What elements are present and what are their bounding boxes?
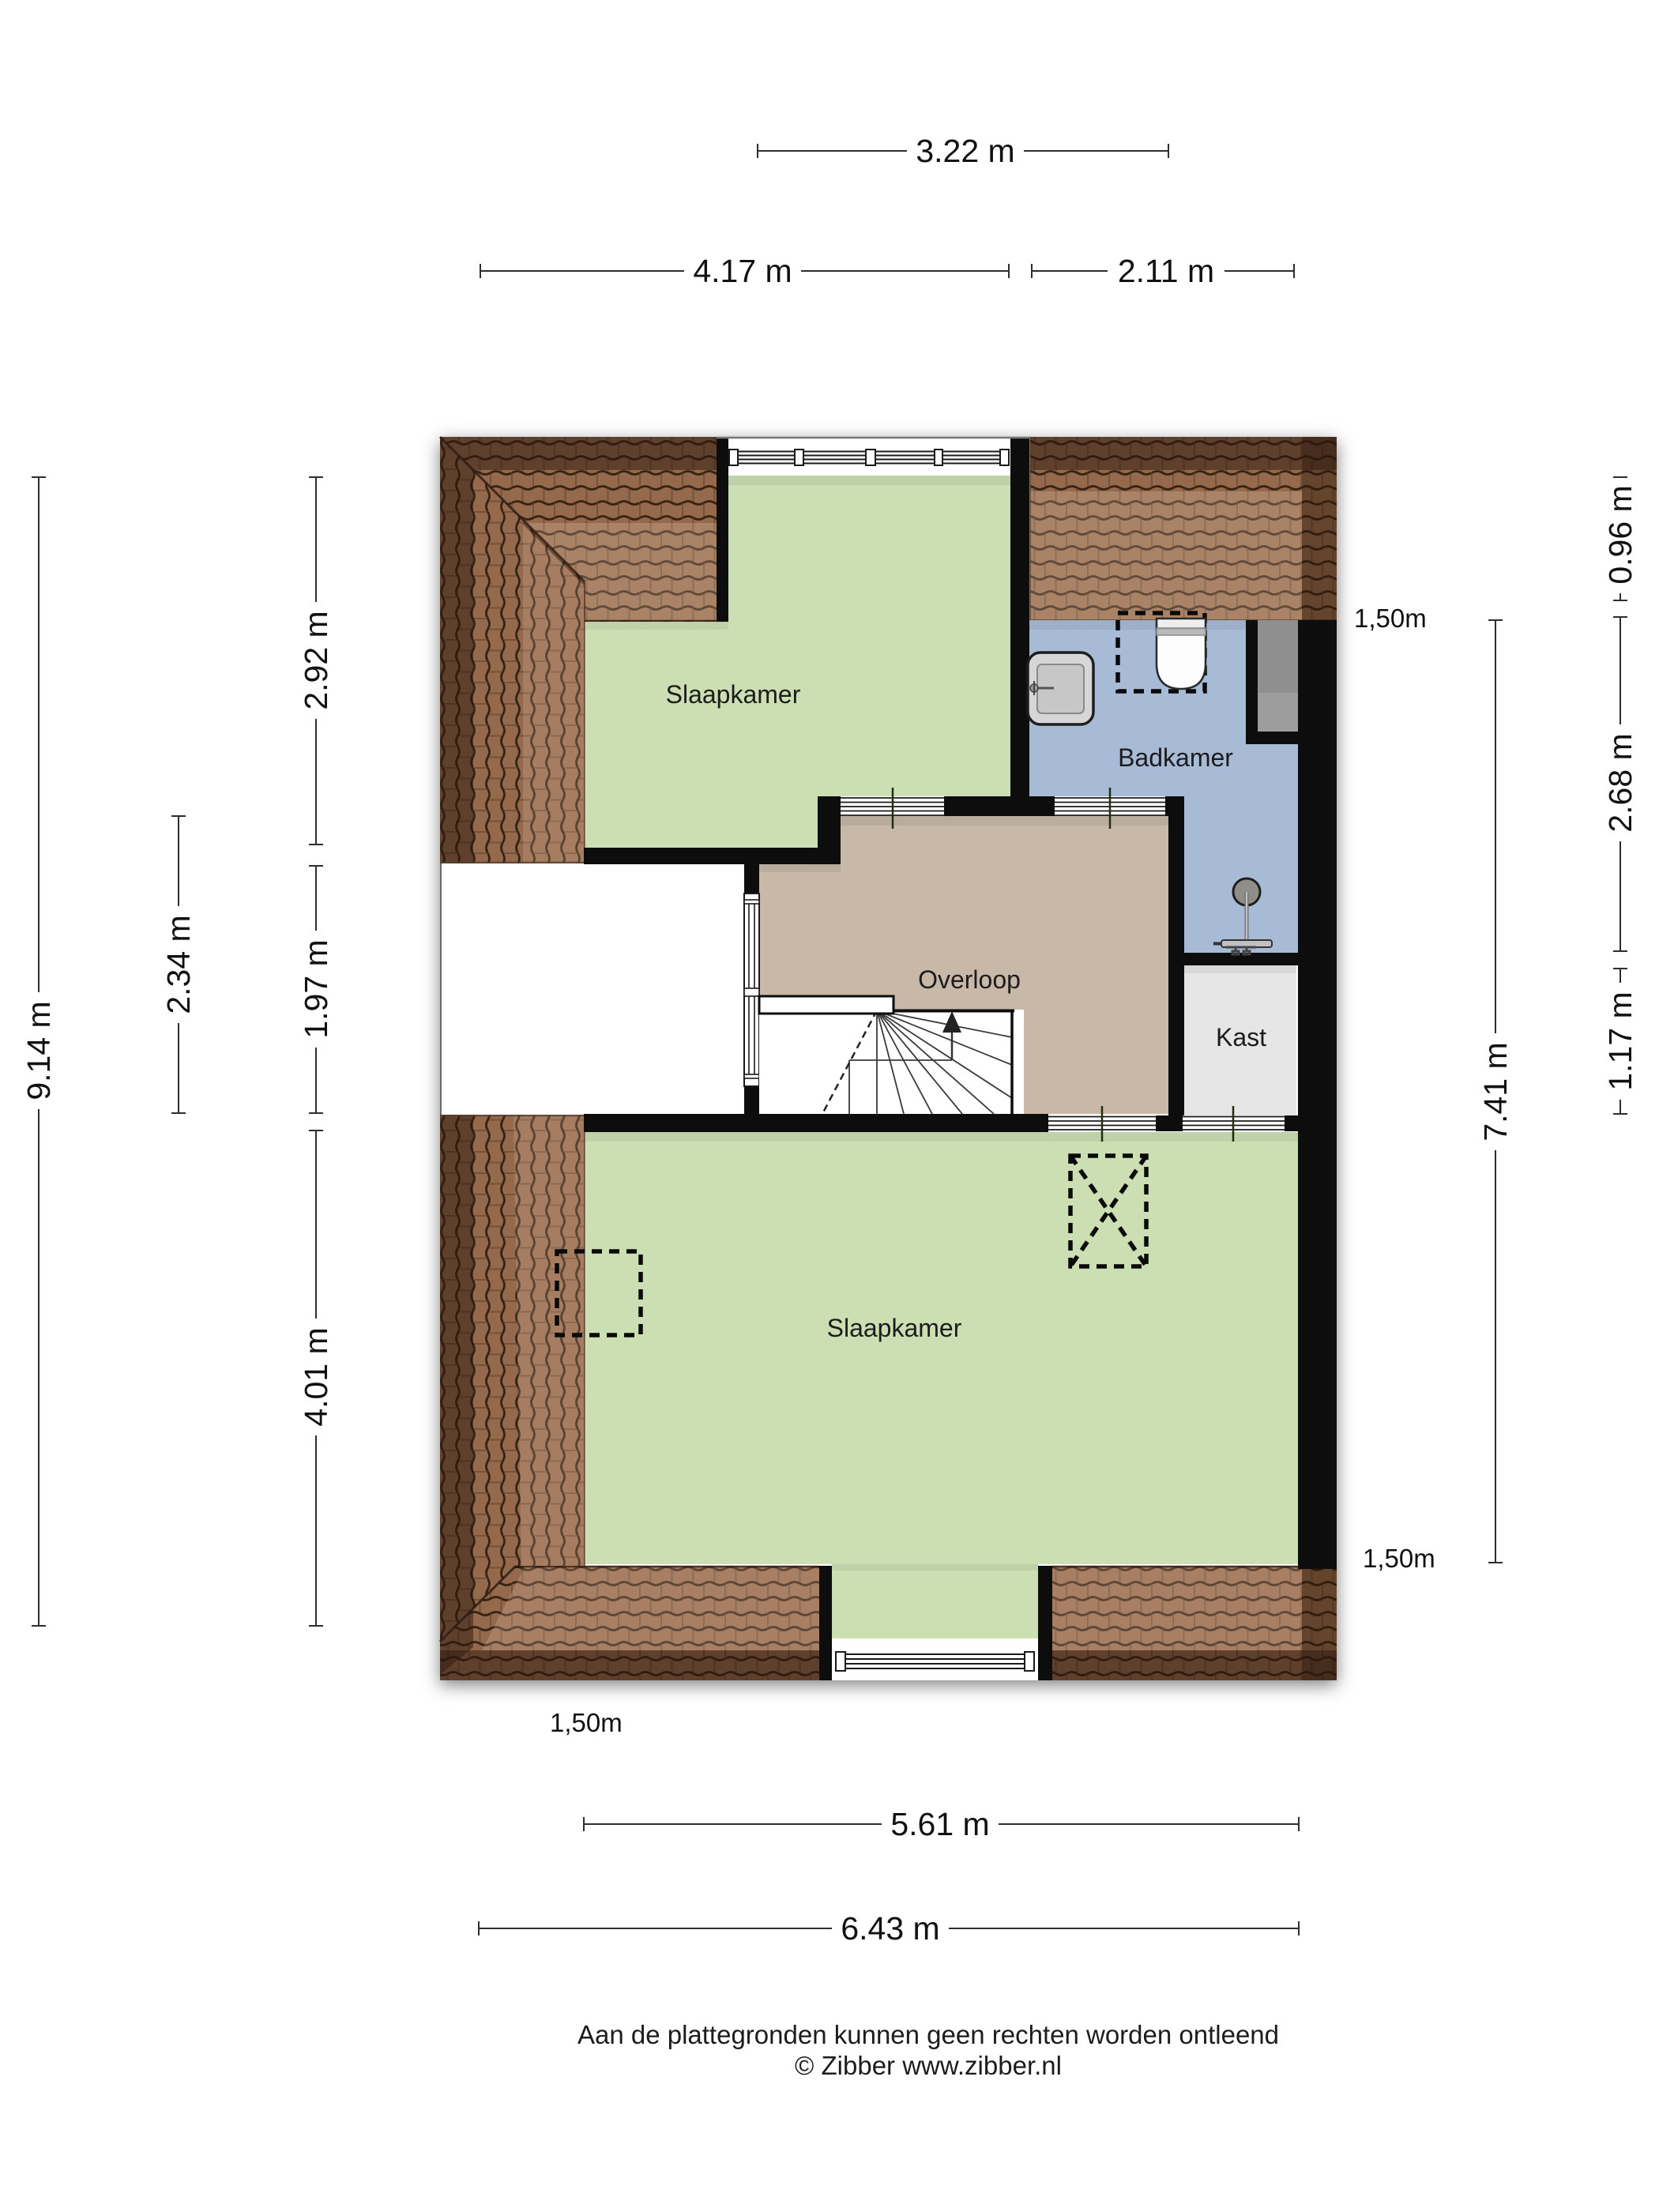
svg-text:1.17 m: 1.17 m (1602, 991, 1638, 1090)
svg-text:6.43 m: 6.43 m (841, 1910, 939, 1947)
svg-text:© Zibber www.zibber.nl: © Zibber www.zibber.nl (795, 2051, 1062, 2080)
svg-text:9.14 m: 9.14 m (21, 1001, 57, 1100)
svg-text:2.34 m: 2.34 m (160, 915, 197, 1014)
svg-text:7.41 m: 7.41 m (1477, 1042, 1514, 1141)
svg-text:2.11 m: 2.11 m (1118, 253, 1214, 289)
svg-text:2.92 m: 2.92 m (298, 611, 334, 709)
svg-text:1,50m: 1,50m (1363, 1544, 1435, 1573)
svg-text:4.01 m: 4.01 m (298, 1327, 334, 1426)
svg-text:1,50m: 1,50m (1354, 604, 1427, 633)
svg-text:Aan de plattegronden kunnen ge: Aan de plattegronden kunnen geen rechten… (577, 2020, 1279, 2049)
svg-text:4.17 m: 4.17 m (693, 253, 792, 289)
svg-text:Overloop: Overloop (918, 965, 1021, 994)
svg-text:Slaapkamer: Slaapkamer (666, 680, 801, 709)
svg-text:1.97 m: 1.97 m (298, 939, 334, 1038)
svg-text:0.96 m: 0.96 m (1602, 485, 1638, 584)
svg-text:2.68 m: 2.68 m (1602, 733, 1638, 832)
svg-text:3.22 m: 3.22 m (916, 133, 1014, 169)
svg-text:1,50m: 1,50m (550, 1708, 623, 1737)
svg-text:5.61 m: 5.61 m (890, 1806, 989, 1842)
svg-text:Slaapkamer: Slaapkamer (827, 1314, 962, 1342)
svg-text:Badkamer: Badkamer (1118, 743, 1233, 772)
svg-text:Kast: Kast (1216, 1023, 1266, 1051)
